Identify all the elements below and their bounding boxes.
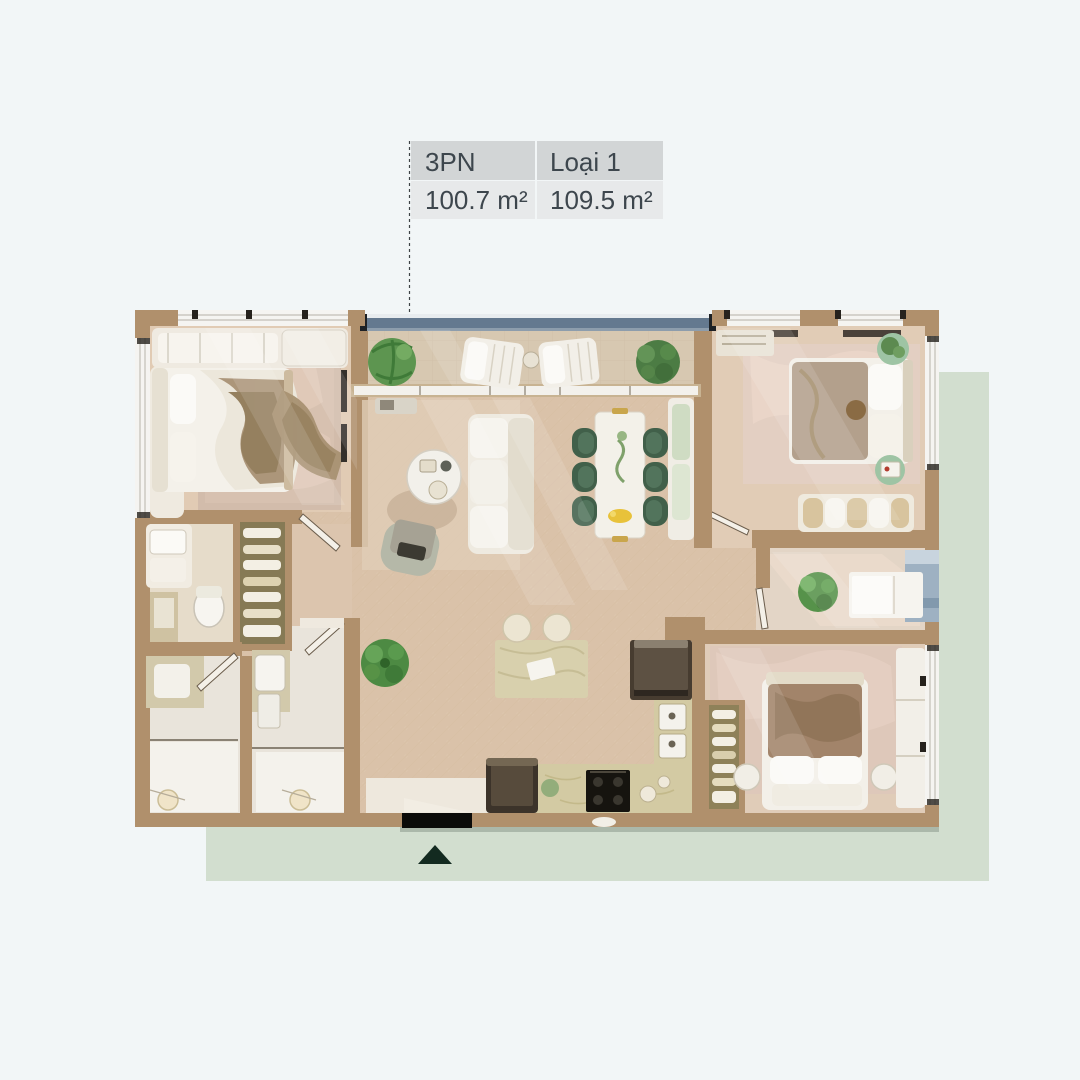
svg-text:109.5 m²: 109.5 m²	[550, 185, 653, 215]
svg-text:100.7 m²: 100.7 m²	[425, 185, 528, 215]
svg-text:3PN: 3PN	[425, 147, 476, 177]
svg-text:Loại 1: Loại 1	[550, 147, 621, 177]
